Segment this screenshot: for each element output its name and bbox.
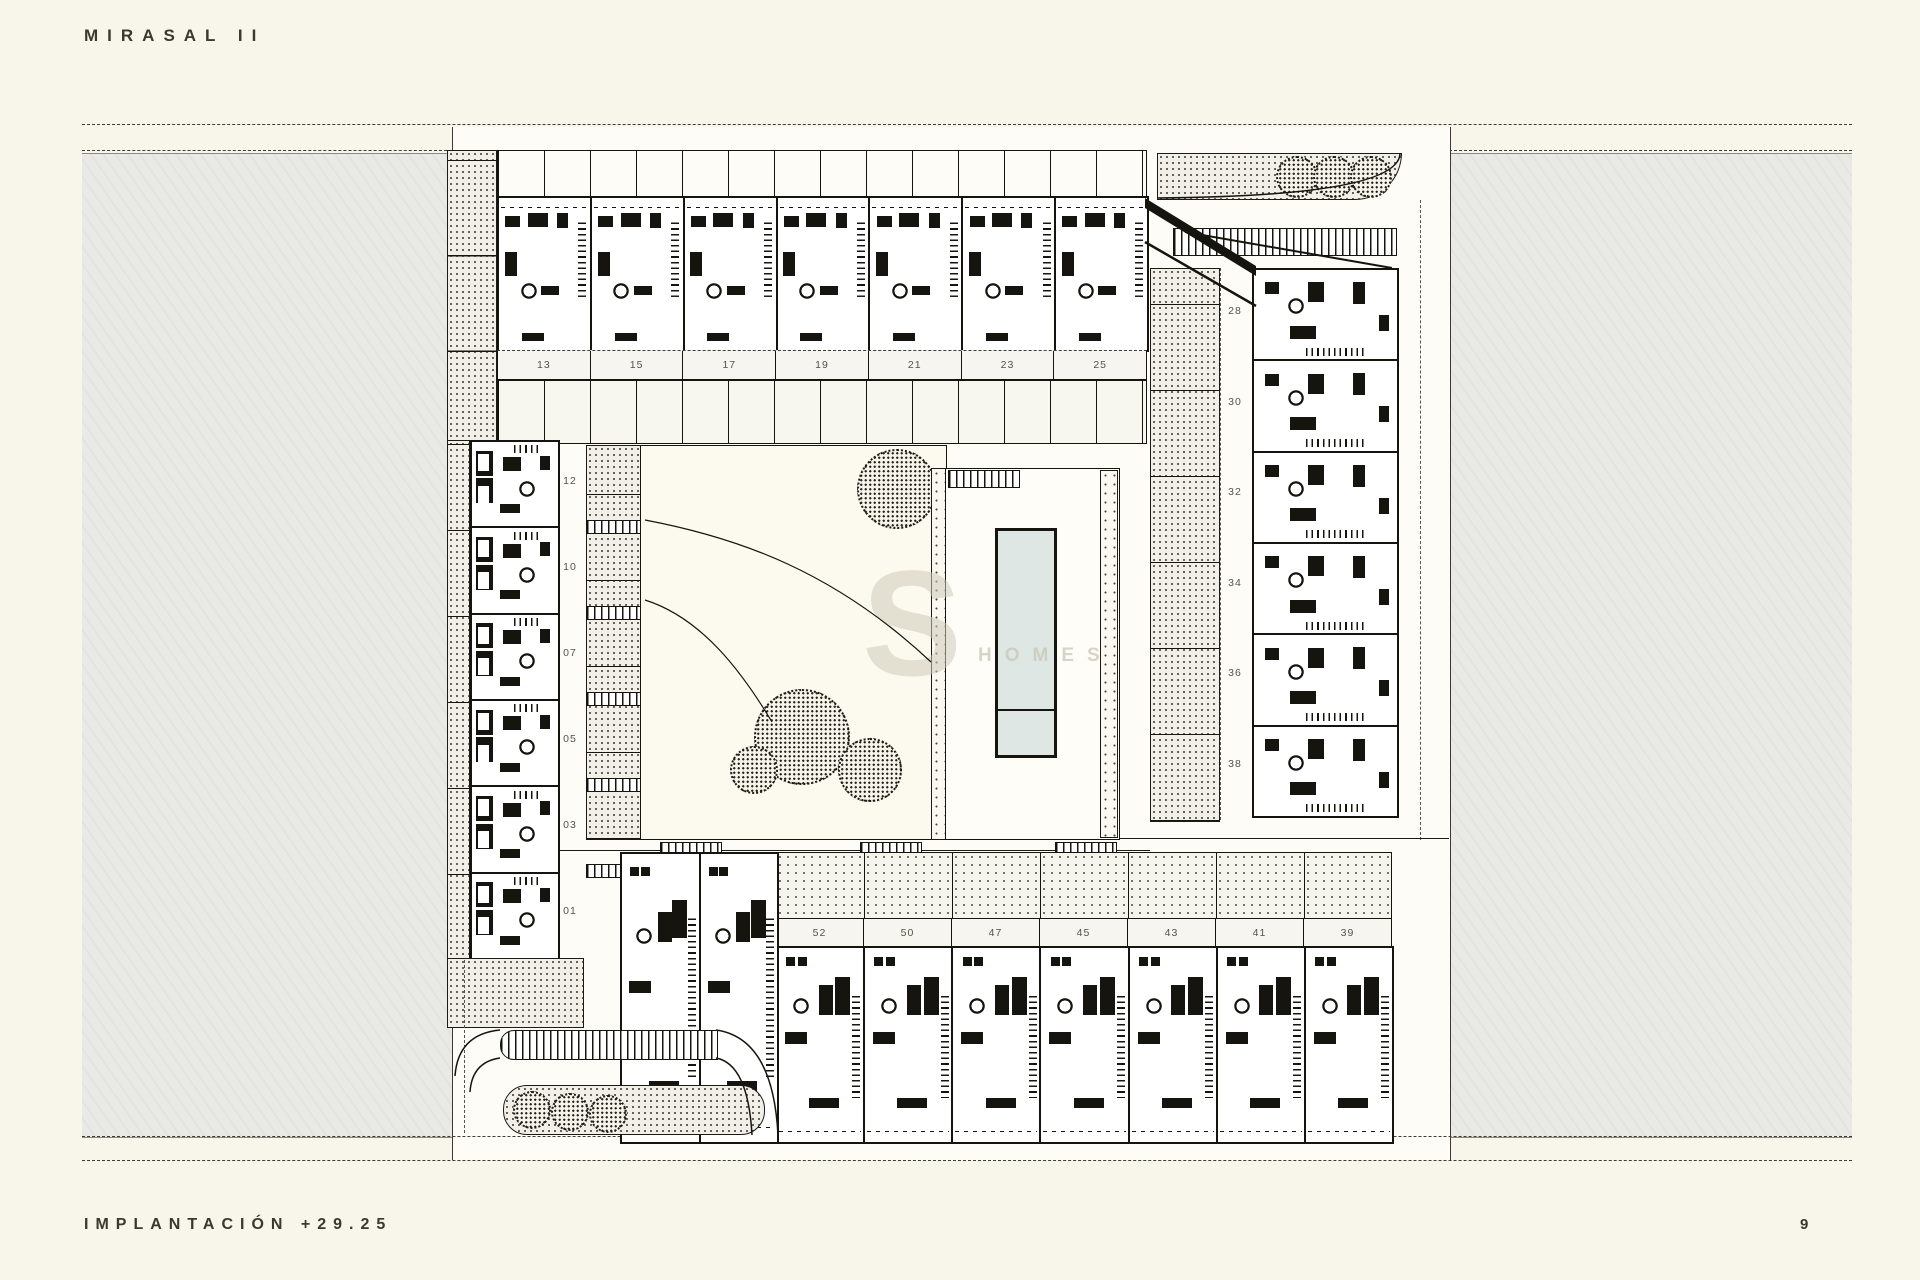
drawing-sheet: MIRASAL II IMPLANTACIÓN +29.25 9 13 15 1… xyxy=(0,0,1920,1280)
road-curb-curve xyxy=(470,1058,500,1092)
roof-break-wedge xyxy=(1145,198,1256,276)
garden-contour-path xyxy=(645,600,772,722)
road-curb-curve xyxy=(1157,153,1400,198)
road-curb-curve xyxy=(716,1058,752,1135)
road-curb-curve xyxy=(716,1030,778,1135)
roof-break-line xyxy=(1145,242,1256,306)
roads-and-contours-layer xyxy=(0,0,1920,1280)
garden-contour-path xyxy=(645,520,931,662)
